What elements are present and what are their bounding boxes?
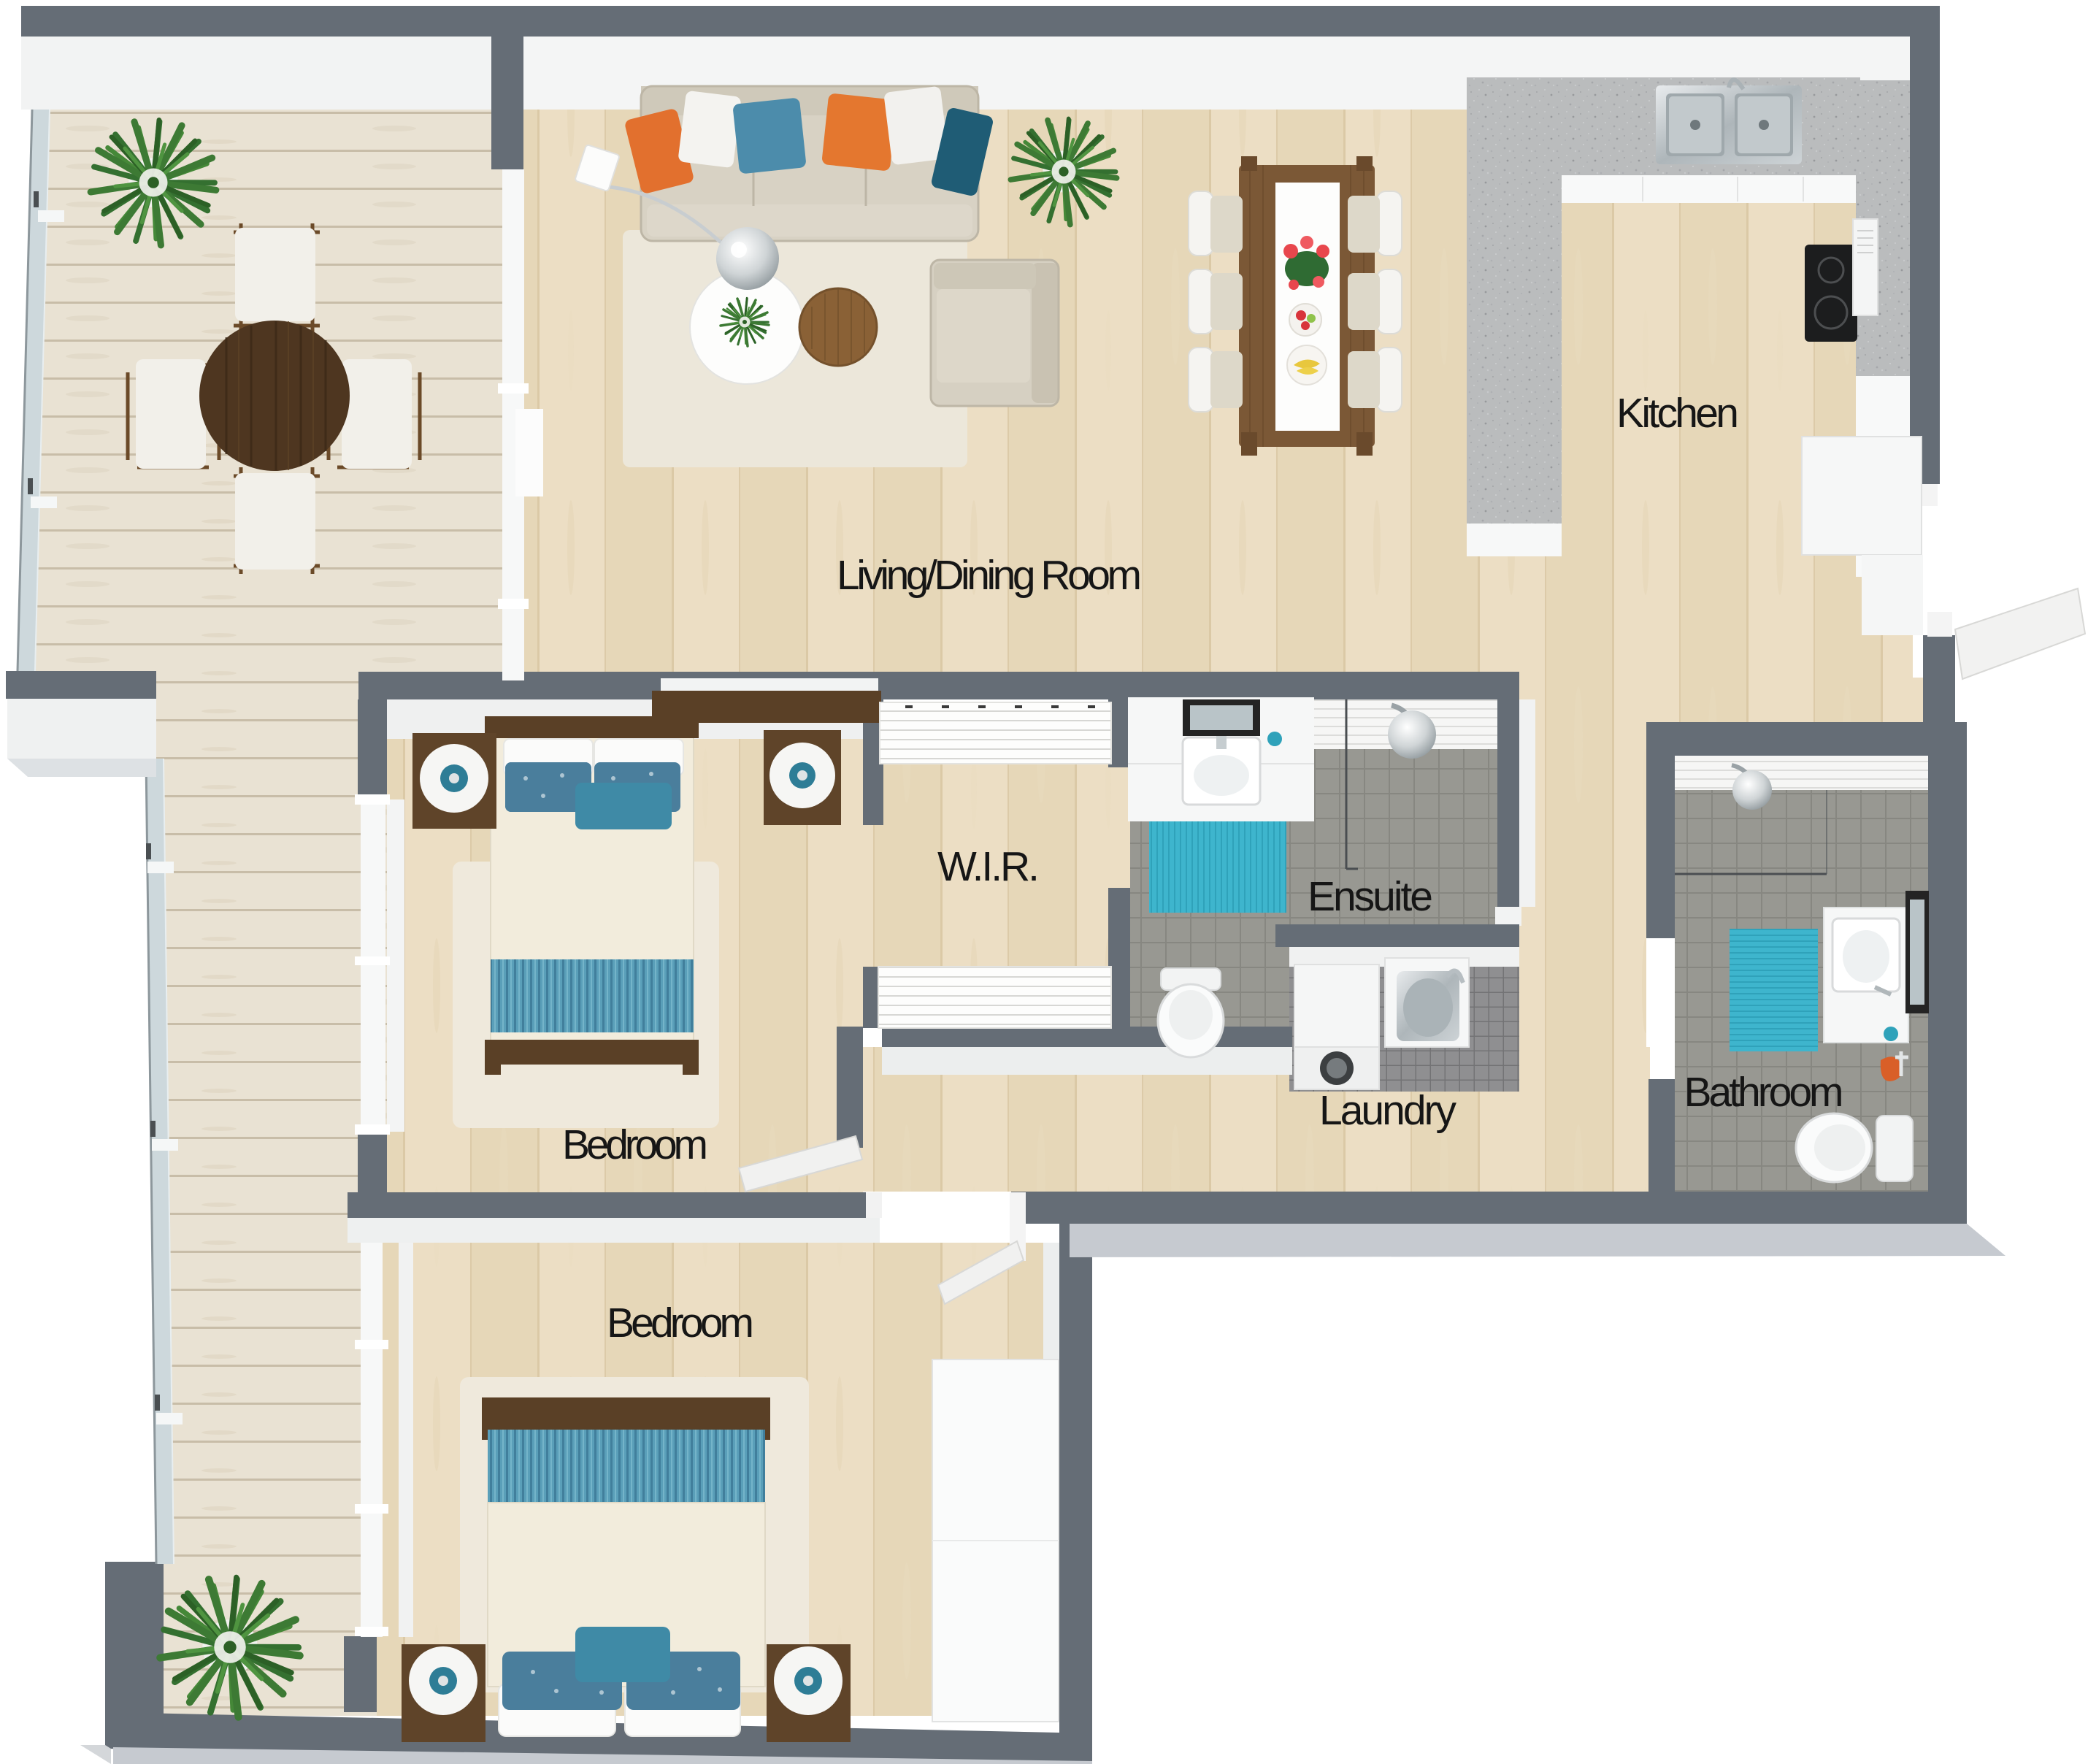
svg-text:Living/Dining Room: Living/Dining Room — [837, 552, 1142, 599]
svg-text:Bathroom: Bathroom — [1684, 1069, 1844, 1116]
svg-text:W.I.R.: W.I.R. — [937, 843, 1040, 890]
svg-text:Bedroom: Bedroom — [562, 1121, 708, 1168]
svg-text:Bedroom: Bedroom — [607, 1300, 754, 1346]
svg-text:Kitchen: Kitchen — [1616, 390, 1739, 437]
svg-text:Laundry: Laundry — [1319, 1087, 1457, 1134]
svg-text:Ensuite: Ensuite — [1308, 873, 1433, 920]
